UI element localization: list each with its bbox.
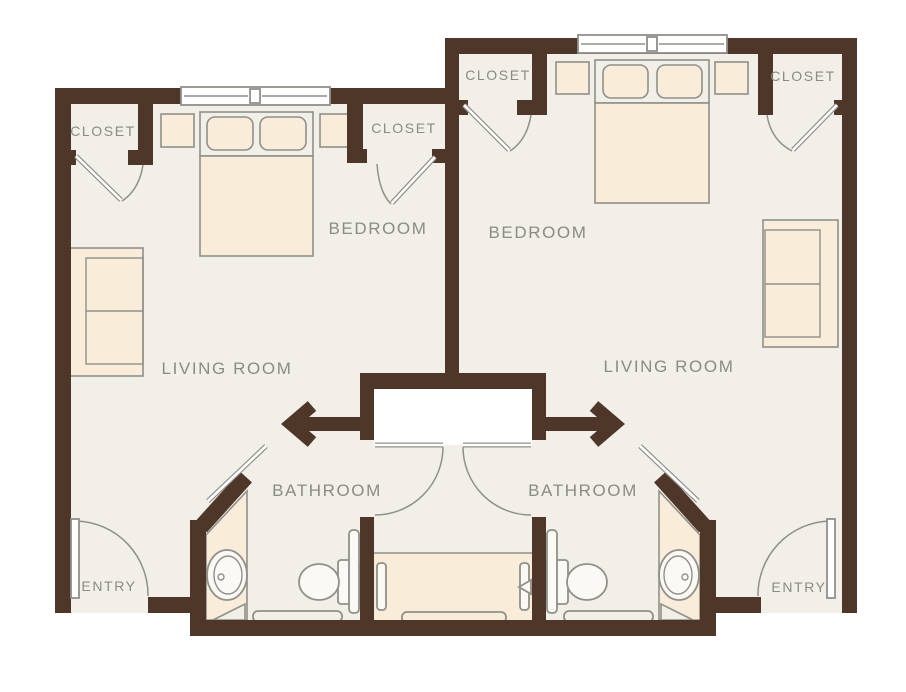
room-label-entry: ENTRY [771,579,826,595]
closet-jamb [347,149,367,163]
nightstand-icon [161,114,194,147]
right-bedroom-window [578,35,727,53]
nightstand-icon [556,62,589,94]
room-label-entry: ENTRY [81,578,136,594]
bed-mattress [200,156,313,256]
sofa-icon [763,220,838,347]
toilet-bowl [567,564,607,600]
left-living-furniture [70,248,143,376]
shared-shower [374,553,532,623]
nightstand-icon [715,62,748,94]
closet-wall [758,54,773,115]
room-label-bedroom: BEDROOM [488,223,587,242]
sink-basin [659,550,699,600]
closet-jamb [517,100,532,115]
window-mullion [250,89,260,103]
shower-door-jamb [547,530,557,613]
door-leaf [71,519,79,598]
bathroom-bottom-wall [190,620,716,636]
room-label-closet: CLOSET [770,68,836,84]
room-label-living-room: LIVING ROOM [162,359,293,378]
bed-icon [595,60,709,203]
bed-pillow [657,65,702,98]
room-label-bedroom: BEDROOM [328,219,427,238]
left-exterior-wall [55,88,71,613]
room-label-closet: CLOSET [70,123,136,139]
sink-icon [659,550,699,600]
shower-left-wall [360,517,374,636]
left-bedroom-window [181,87,330,105]
closet-wall [532,54,547,115]
unit-divider-wall [445,38,459,373]
bed-pillow [603,65,648,98]
vestibule-top-wall [360,373,546,389]
floor-plan-page: CLOSET CLOSET BEDROOM LIVING ROOM BATHRO… [0,0,906,692]
right-exterior-wall [842,38,857,613]
door-leaf [827,519,835,598]
vestibule-left-wall [360,373,374,440]
room-label-living-room: LIVING ROOM [604,357,735,376]
sofa-icon [70,248,143,376]
closet-wall [138,104,153,165]
shower-door-jamb [377,563,386,610]
room-label-bathroom: BATHROOM [272,481,382,500]
room-label-closet: CLOSET [371,120,437,136]
toilet-bowl [299,564,339,600]
sink-basin [207,550,247,600]
sink-icon [207,550,247,600]
closet-jamb [128,150,138,165]
bed-pillow [260,117,306,150]
window-mullion [647,37,657,51]
vestibule-floor [374,389,532,445]
sofa-body [70,248,143,376]
shower-right-wall [532,517,546,636]
right-vanity-wall [700,520,716,622]
bed-mattress [595,103,709,203]
right-living-furniture [763,220,838,347]
room-label-bathroom: BATHROOM [528,481,638,500]
vestibule-right-wall [532,373,546,440]
bed-pillow [207,117,253,150]
floor-plan: CLOSET CLOSET BEDROOM LIVING ROOM BATHRO… [0,0,906,692]
left-vanity-wall [190,520,206,622]
shower-door-jamb [349,530,359,613]
room-label-closet: CLOSET [465,67,531,83]
bed-icon [200,112,313,256]
